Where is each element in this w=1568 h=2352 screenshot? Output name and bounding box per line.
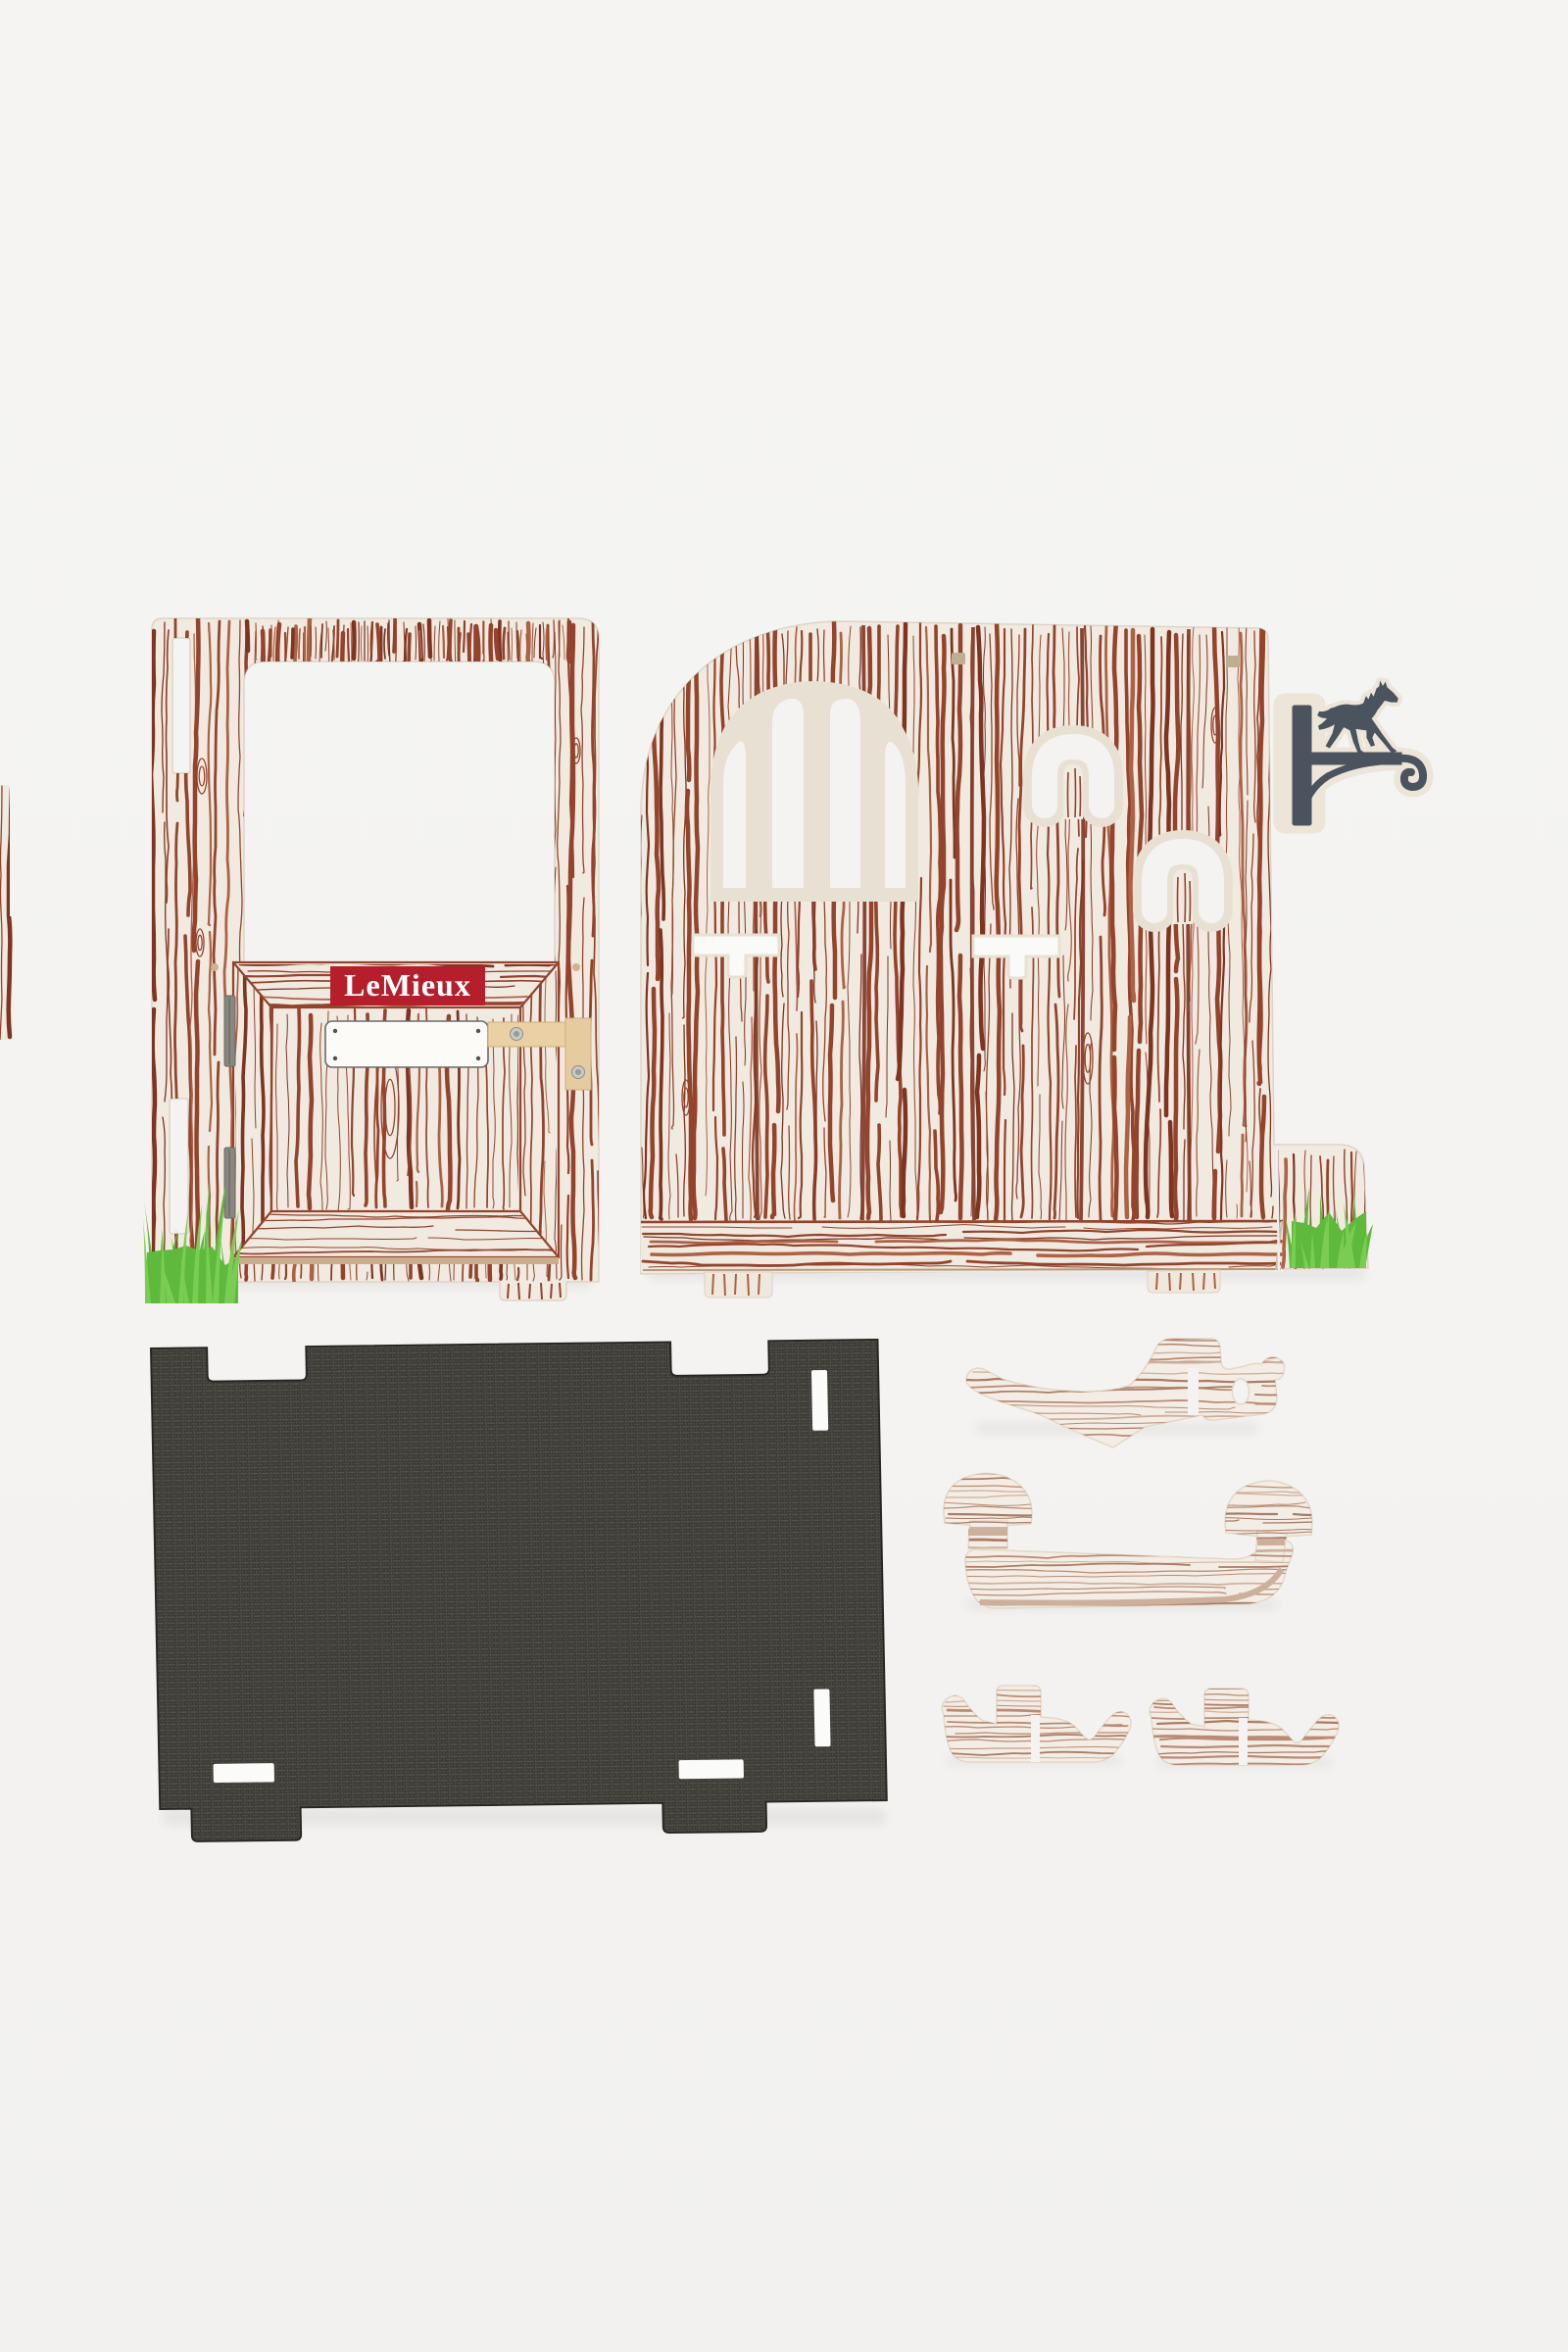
svg-text:LeMieux: LeMieux: [344, 967, 471, 1003]
